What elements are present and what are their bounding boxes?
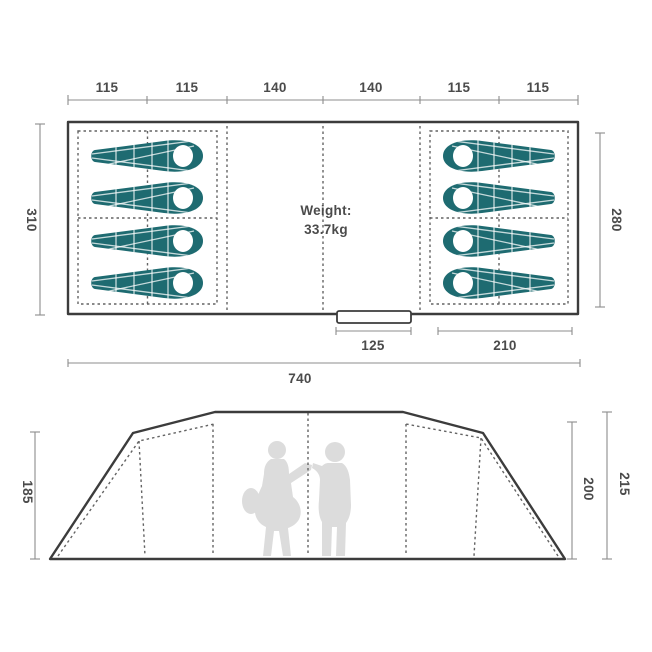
front-dim-label: 210 bbox=[493, 338, 516, 353]
front-dimension-line bbox=[438, 327, 572, 335]
top-dim-label-5: 115 bbox=[448, 80, 471, 95]
top-dim-label-3: 140 bbox=[263, 80, 286, 95]
right-depth-dimension-line bbox=[595, 133, 605, 307]
tent-door bbox=[337, 311, 411, 323]
weight-value: 33.7kg bbox=[304, 222, 348, 237]
inner-height-dimension-line bbox=[567, 422, 577, 559]
tent-dimensions-diagram: Weight: 33.7kg 115 115 140 140 115 115 3… bbox=[0, 0, 652, 652]
left-depth-label: 310 bbox=[24, 208, 39, 231]
diagram-canvas: Weight: 33.7kg 115 115 140 140 115 115 3… bbox=[0, 0, 652, 652]
door-dimension-line bbox=[336, 327, 411, 335]
top-dimension-line bbox=[68, 95, 578, 105]
top-dim-label-4: 140 bbox=[359, 80, 382, 95]
total-width-dimension-line bbox=[68, 359, 580, 367]
total-height-label: 215 bbox=[617, 472, 632, 496]
right-depth-label: 280 bbox=[609, 208, 624, 231]
door-dim-label: 125 bbox=[361, 338, 385, 353]
top-dim-label-1: 115 bbox=[96, 80, 119, 95]
total-height-dimension-line bbox=[602, 412, 612, 559]
floor-plan-view: Weight: 33.7kg 115 115 140 140 115 115 3… bbox=[24, 80, 624, 386]
elevation-view: 185 200 215 bbox=[20, 412, 632, 559]
inner-height-label: 200 bbox=[581, 477, 596, 500]
top-dim-label-2: 115 bbox=[176, 80, 199, 95]
total-width-label: 740 bbox=[288, 371, 311, 386]
weight-label: Weight: bbox=[300, 203, 351, 218]
top-dim-label-6: 115 bbox=[527, 80, 550, 95]
side-height-label: 185 bbox=[20, 480, 35, 504]
